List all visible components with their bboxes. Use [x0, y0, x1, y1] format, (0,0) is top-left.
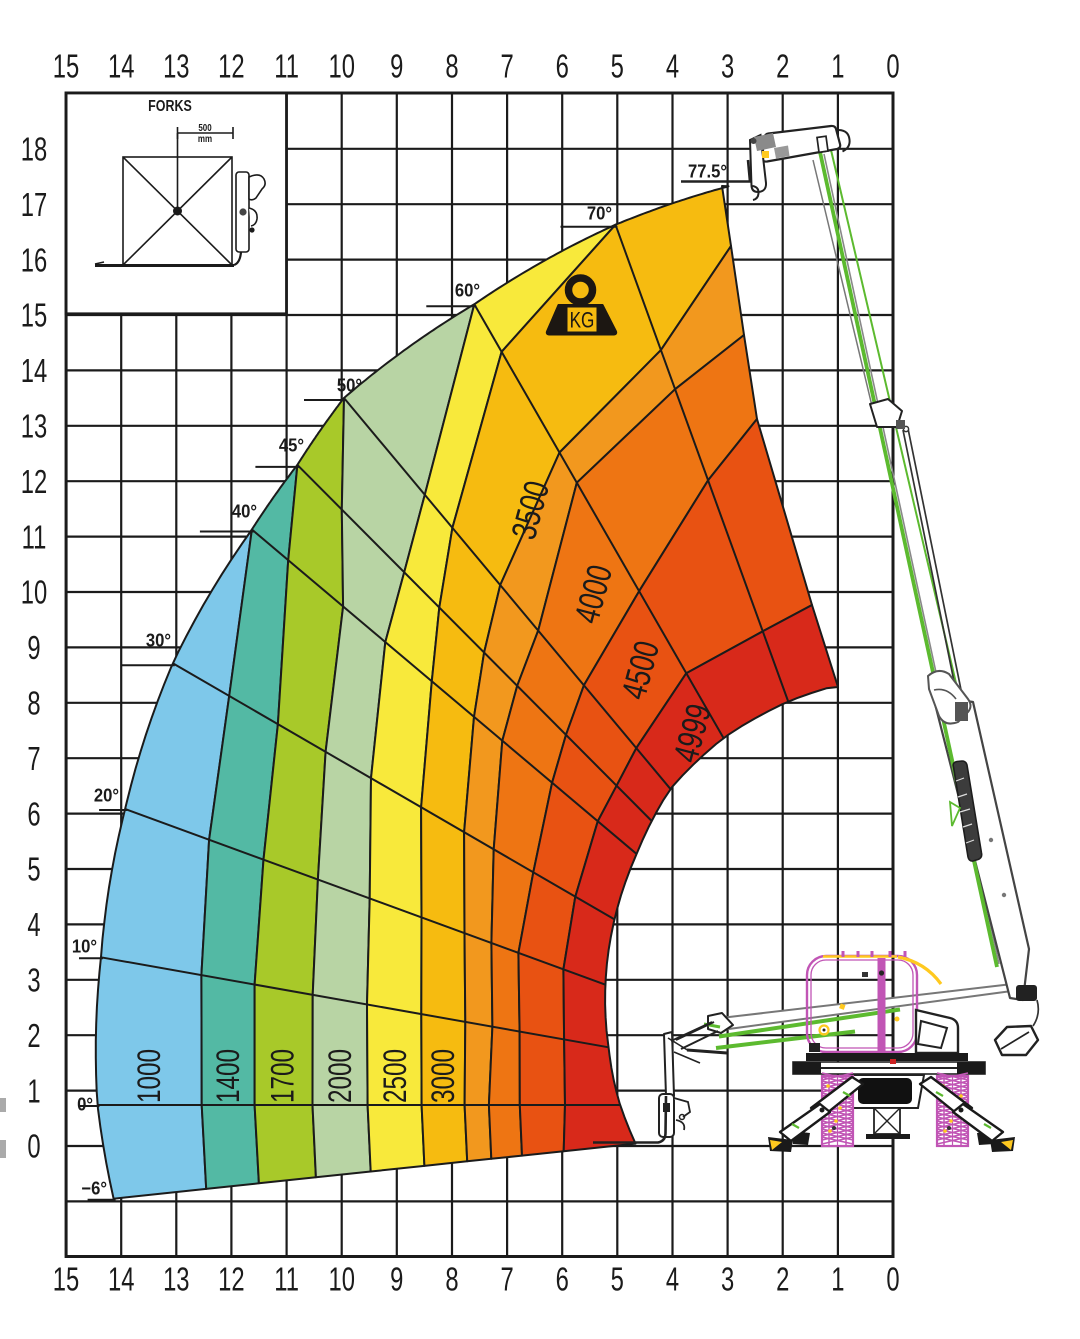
svg-text:12: 12	[218, 49, 244, 86]
svg-text:mm: mm	[198, 133, 212, 144]
svg-text:0: 0	[27, 1129, 40, 1166]
svg-text:11: 11	[274, 1262, 299, 1299]
svg-text:500: 500	[198, 122, 211, 133]
svg-text:30°: 30°	[146, 630, 171, 651]
svg-text:1: 1	[831, 1262, 844, 1299]
svg-text:13: 13	[163, 1262, 189, 1299]
svg-text:6: 6	[556, 1262, 569, 1299]
svg-text:10: 10	[328, 1262, 354, 1299]
svg-text:3: 3	[27, 963, 40, 1000]
svg-text:9: 9	[27, 630, 40, 667]
svg-text:14: 14	[108, 49, 134, 86]
svg-text:4: 4	[27, 907, 40, 944]
svg-text:12: 12	[21, 464, 47, 501]
svg-text:11: 11	[274, 49, 299, 86]
svg-text:7: 7	[27, 741, 40, 778]
svg-text:2: 2	[776, 1262, 789, 1299]
svg-text:0°: 0°	[77, 1094, 93, 1115]
svg-text:20°: 20°	[94, 785, 119, 806]
svg-text:1000: 1000	[132, 1049, 168, 1103]
svg-text:5: 5	[611, 1262, 624, 1299]
svg-text:60°: 60°	[455, 280, 480, 301]
svg-text:15: 15	[53, 1262, 79, 1299]
svg-text:13: 13	[163, 49, 189, 86]
svg-text:16: 16	[21, 242, 47, 279]
svg-text:15: 15	[21, 298, 47, 335]
svg-text:13: 13	[21, 409, 47, 446]
svg-text:7: 7	[500, 1262, 513, 1299]
svg-text:1: 1	[27, 1073, 40, 1110]
svg-text:10: 10	[328, 49, 354, 86]
svg-text:8: 8	[445, 49, 458, 86]
svg-text:1: 1	[831, 49, 844, 86]
svg-text:4: 4	[666, 1262, 679, 1299]
svg-text:5: 5	[611, 49, 624, 86]
svg-text:15: 15	[53, 49, 79, 86]
svg-text:11: 11	[22, 519, 47, 556]
svg-text:77.5°: 77.5°	[688, 161, 727, 182]
svg-text:14: 14	[108, 1262, 134, 1299]
svg-text:6: 6	[556, 49, 569, 86]
svg-text:2: 2	[776, 49, 789, 86]
svg-text:5: 5	[27, 852, 40, 889]
svg-text:8: 8	[27, 686, 40, 723]
svg-text:9: 9	[390, 1262, 403, 1299]
svg-text:7: 7	[500, 49, 513, 86]
svg-text:4: 4	[666, 49, 679, 86]
svg-text:17: 17	[21, 187, 47, 224]
svg-text:1700: 1700	[266, 1049, 302, 1103]
svg-text:10°: 10°	[72, 936, 97, 957]
svg-text:0: 0	[886, 1262, 899, 1299]
svg-text:45°: 45°	[279, 435, 304, 456]
svg-text:9: 9	[390, 49, 403, 86]
svg-text:1400: 1400	[211, 1049, 247, 1103]
svg-text:−6°: −6°	[81, 1178, 107, 1199]
svg-text:10: 10	[21, 575, 47, 612]
svg-text:FORKS: FORKS	[148, 98, 192, 116]
svg-text:12: 12	[218, 1262, 244, 1299]
svg-text:0: 0	[886, 49, 899, 86]
svg-text:KG: KG	[570, 309, 595, 334]
svg-text:3000: 3000	[426, 1049, 462, 1103]
svg-text:6: 6	[27, 796, 40, 833]
svg-text:8: 8	[445, 1262, 458, 1299]
svg-text:2: 2	[27, 1018, 40, 1055]
svg-text:50°: 50°	[337, 375, 362, 396]
svg-text:3: 3	[721, 49, 734, 86]
svg-text:2000: 2000	[323, 1049, 359, 1103]
svg-text:2500: 2500	[378, 1049, 414, 1103]
svg-text:3: 3	[721, 1262, 734, 1299]
svg-text:14: 14	[21, 353, 47, 390]
svg-text:18: 18	[21, 132, 47, 169]
svg-text:70°: 70°	[587, 203, 612, 224]
svg-text:40°: 40°	[232, 501, 257, 522]
